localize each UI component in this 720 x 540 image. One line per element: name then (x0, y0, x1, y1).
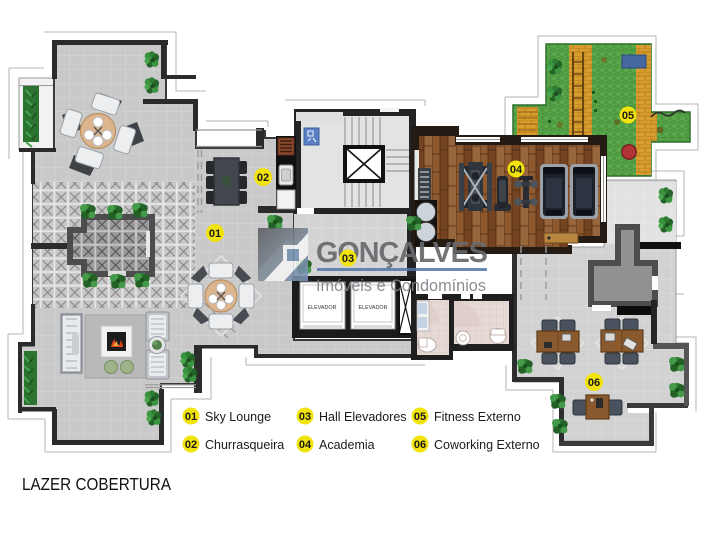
svg-text:01: 01 (185, 411, 197, 423)
svg-text:04: 04 (299, 439, 312, 451)
svg-text:01: 01 (209, 228, 221, 240)
svg-text:Fitness Externo: Fitness Externo (434, 410, 521, 424)
svg-text:Academia: Academia (319, 438, 375, 452)
svg-text:Churrasqueira: Churrasqueira (205, 438, 284, 452)
svg-text:04: 04 (510, 164, 523, 176)
svg-text:LAZER COBERTURA: LAZER COBERTURA (22, 474, 171, 494)
svg-text:03: 03 (342, 253, 354, 265)
svg-text:02: 02 (185, 439, 197, 451)
svg-text:ELEVADOR: ELEVADOR (308, 305, 337, 311)
svg-text:Hall Elevadores: Hall Elevadores (319, 410, 407, 424)
svg-text:Coworking Externo: Coworking Externo (434, 438, 540, 452)
svg-text:ELEVADOR: ELEVADOR (359, 305, 388, 311)
svg-text:02: 02 (257, 172, 269, 184)
svg-text:06: 06 (588, 377, 600, 389)
svg-text:Sky Lounge: Sky Lounge (205, 410, 271, 424)
svg-text:03: 03 (299, 411, 311, 423)
svg-text:06: 06 (414, 439, 426, 451)
svg-text:05: 05 (622, 110, 634, 122)
svg-text:05: 05 (414, 411, 426, 423)
svg-text:Imóveis e Condomínios: Imóveis e Condomínios (316, 277, 486, 295)
